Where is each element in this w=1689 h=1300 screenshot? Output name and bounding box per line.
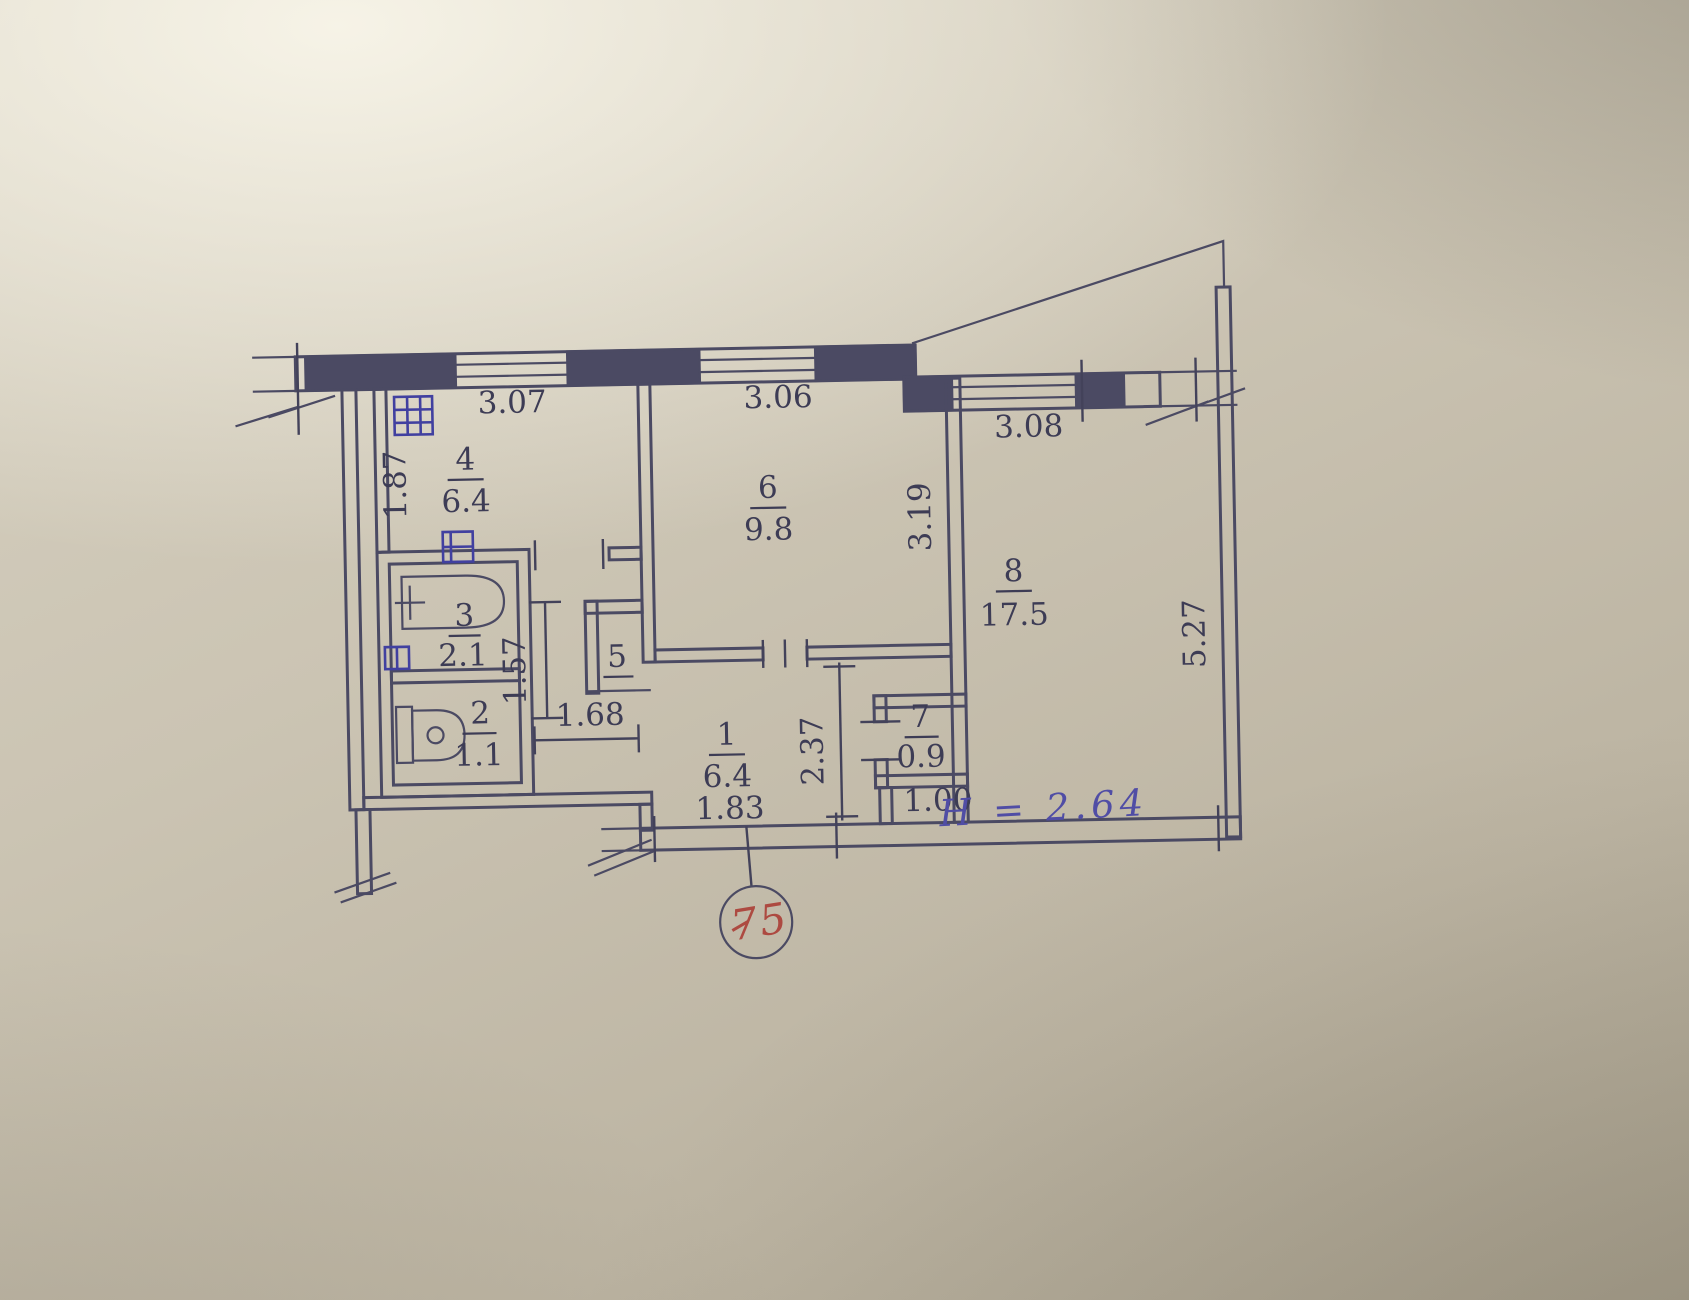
room-1-label: 1 6.4 xyxy=(702,716,753,795)
dim-living-window: 3.06 xyxy=(743,379,813,416)
top-wall-left xyxy=(235,331,917,436)
floor-plan-drawing: 3.07 3.06 3.08 1.87 3.19 5.27 1.57 1.68 … xyxy=(0,0,1689,1300)
living-room-window xyxy=(699,358,815,372)
room-5-number: 5 xyxy=(607,639,627,675)
room-7-label: 7 0.9 xyxy=(895,698,946,775)
room-3-number: 3 xyxy=(454,597,474,633)
apartment-number: 75 xyxy=(727,893,791,950)
vent-grille-icon-wc xyxy=(385,647,409,669)
room-1-number: 1 xyxy=(716,716,736,752)
dim-bedroom-window: 3.08 xyxy=(994,408,1064,445)
room-6-area: 9.8 xyxy=(744,511,794,548)
room-6-label: 6 9.8 xyxy=(743,469,794,548)
room-4-number: 4 xyxy=(455,441,475,477)
wall-break-symbol-bottom-left xyxy=(335,873,396,902)
living-bedroom-wall xyxy=(946,378,969,822)
room-3-area: 2.1 xyxy=(438,637,488,674)
room-1-area: 6.4 xyxy=(702,758,752,795)
kitchen-living-partition xyxy=(638,384,655,662)
room-2-number: 2 xyxy=(470,695,490,731)
room-8-area: 17.5 xyxy=(979,596,1049,633)
room-4-label: 4 6.4 xyxy=(440,441,491,520)
dim-bedroom-depth: 5.27 xyxy=(1176,599,1213,669)
dim-hall-left: 1.68 xyxy=(555,697,625,734)
room-2-area: 1.1 xyxy=(454,737,504,774)
vent-shaft-icon-bath xyxy=(443,532,474,563)
dim-kitchen-window: 3.07 xyxy=(477,384,547,421)
bedroom-window xyxy=(952,385,1076,399)
dim-corridor: 1.57 xyxy=(497,636,534,706)
vent-shaft-icon-kitchen xyxy=(394,396,433,435)
room-5-label: 5 xyxy=(603,638,634,677)
room-8-label: 8 17.5 xyxy=(979,552,1050,633)
right-exterior-wall xyxy=(1216,287,1241,837)
balcony-outline xyxy=(911,241,1225,343)
apartment-number-callout: 75 xyxy=(718,825,793,958)
living-room-bottom-wall xyxy=(655,636,951,670)
room-4-area: 6.4 xyxy=(441,483,491,520)
room-2-label: 2 1.1 xyxy=(453,695,504,774)
room-7-area: 0.9 xyxy=(896,738,946,775)
dim-living-depth: 3.19 xyxy=(902,482,939,552)
dim-hall-width: 1.83 xyxy=(695,790,765,827)
bathtub-icon xyxy=(395,575,504,629)
room-8-number: 8 xyxy=(1003,553,1023,589)
room-3-label: 3 2.1 xyxy=(437,597,488,674)
kitchen-window xyxy=(455,363,567,377)
dim-hall-depth: 2.37 xyxy=(794,716,831,786)
room-7-number: 7 xyxy=(910,699,930,735)
dim-kitchen-depth: 1.87 xyxy=(377,450,414,520)
top-wall-right xyxy=(903,357,1244,430)
room-6-number: 6 xyxy=(758,470,778,506)
